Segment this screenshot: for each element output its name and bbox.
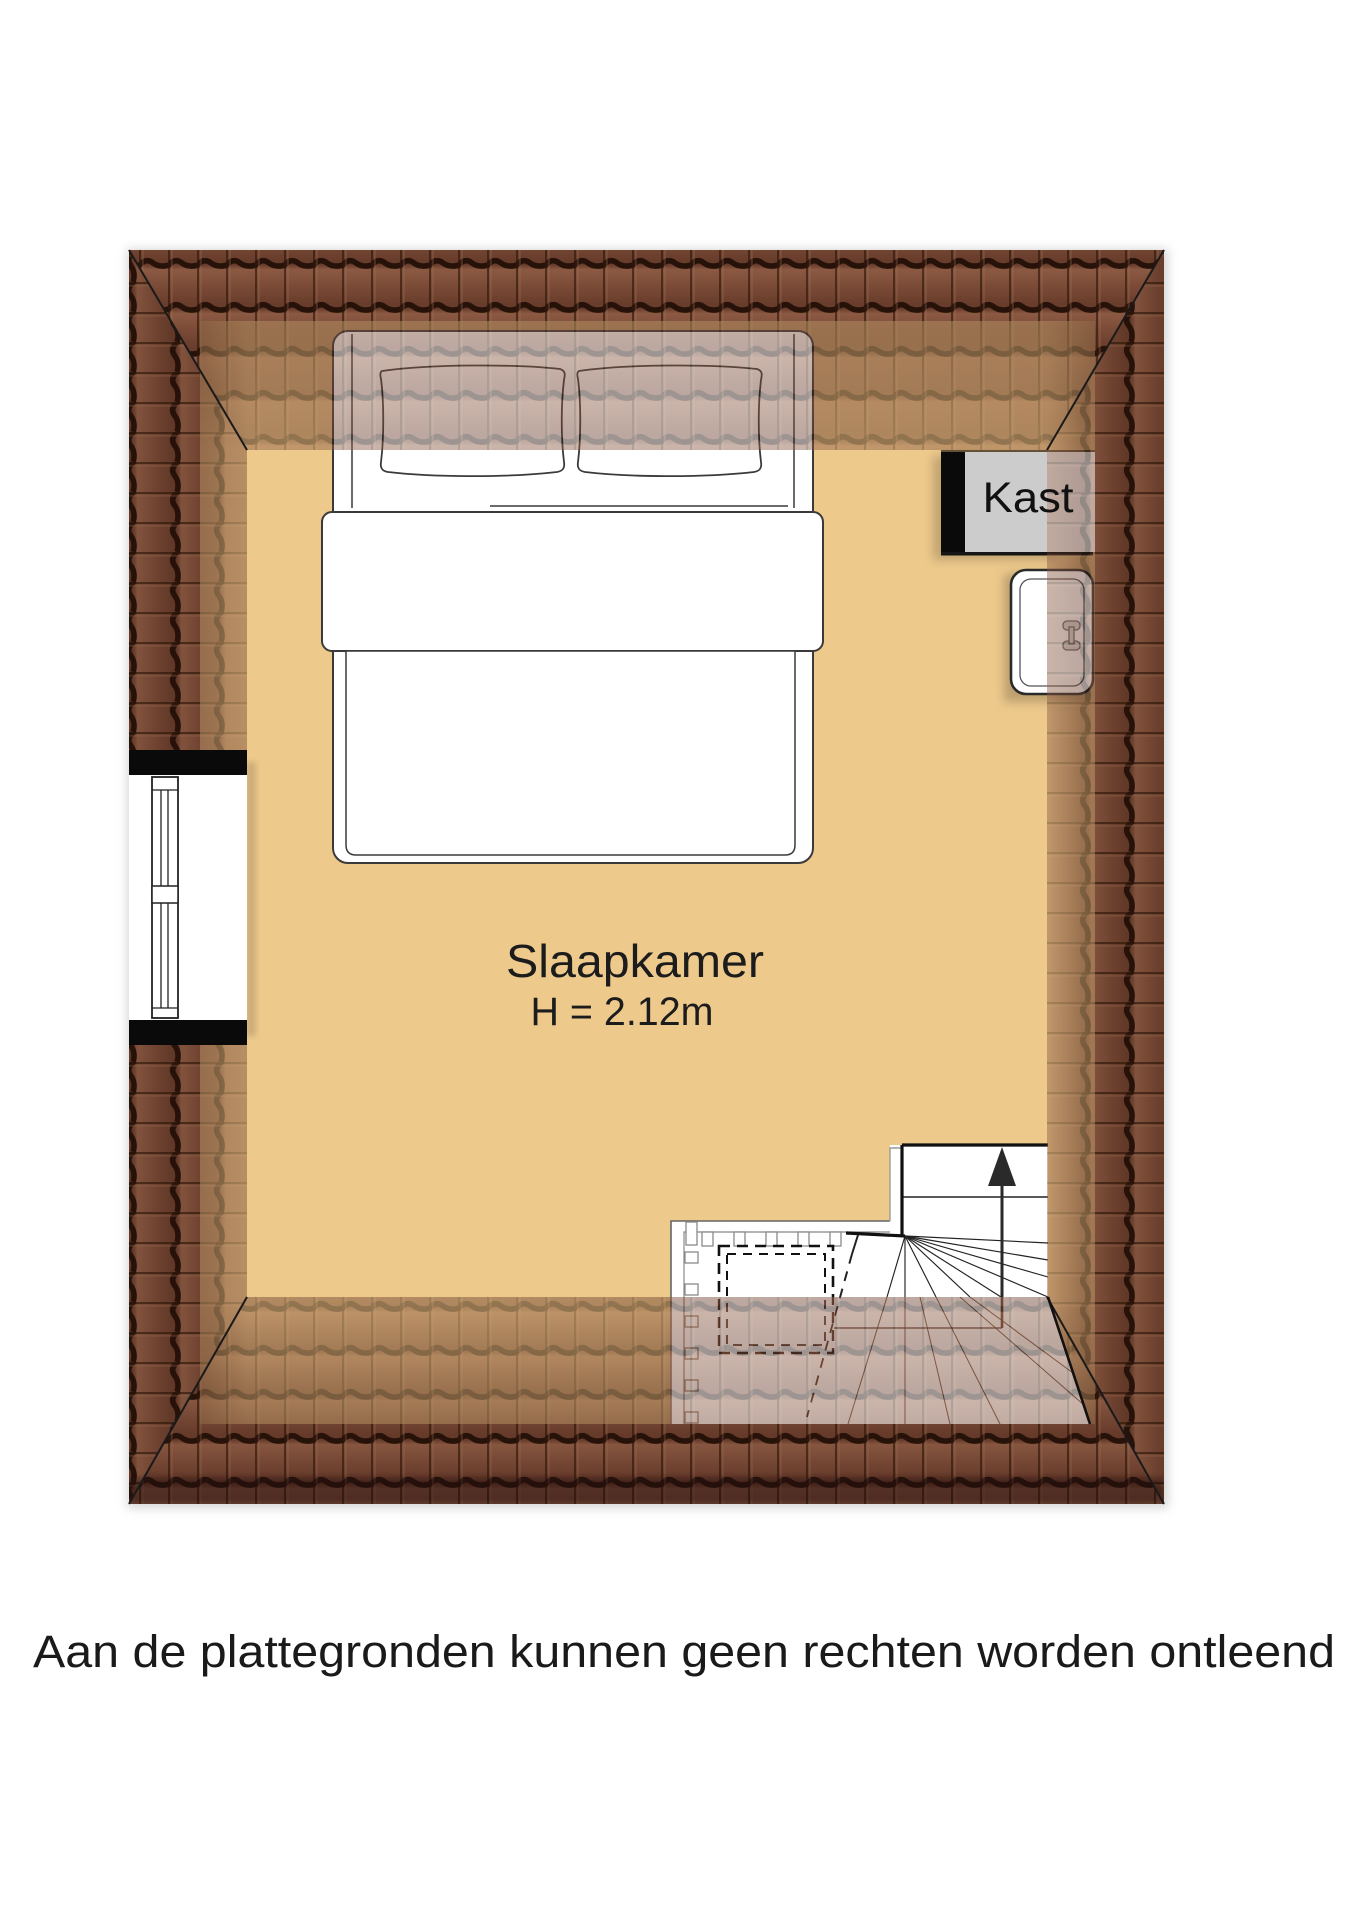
svg-text:Slaapkamer: Slaapkamer <box>506 935 764 987</box>
svg-text:H = 2.12m: H = 2.12m <box>531 990 714 1034</box>
svg-text:Kast: Kast <box>983 474 1074 522</box>
svg-text:Aan de plattegronden kunnen ge: Aan de plattegronden kunnen geen rechten… <box>33 1626 1335 1677</box>
